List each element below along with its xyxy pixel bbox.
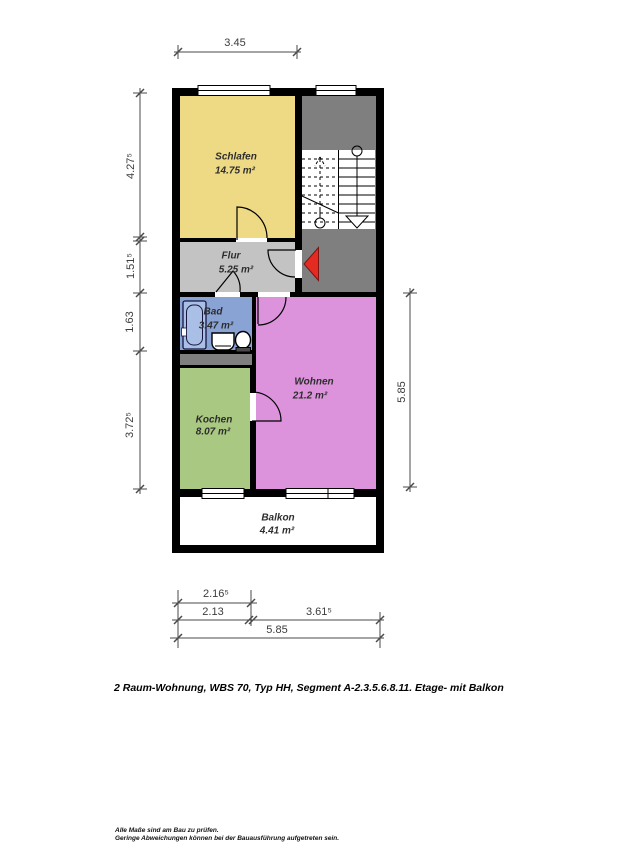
room-label-flur: Flur: [222, 251, 241, 262]
dim-right-label: 5.85: [396, 381, 408, 402]
room-area-flur: 5.25 m²: [219, 265, 253, 276]
room-area-wohnen: 21.2 m²: [293, 391, 327, 402]
shaft: [180, 354, 252, 365]
floor-plan-canvas: [0, 0, 640, 849]
room-area-bad: 3.47 m²: [199, 321, 233, 332]
room-area-kochen: 8.07 m²: [196, 427, 230, 438]
dim-left-label-2: 1.63: [124, 311, 136, 332]
room-label-wohnen: Wohnen: [294, 377, 333, 388]
washbasin-icon: [212, 333, 234, 350]
floor-plan-page: Schlafen 14.75 m² Flur 5.25 m² Bad 3.47 …: [0, 0, 640, 849]
dim-bottom-label-0: 2.16⁵: [203, 588, 229, 600]
toilet-icon: [236, 332, 251, 353]
dim-top-label: 3.45: [224, 37, 245, 49]
plan-footnote: Alle Maße sind am Bau zu prüfen. Geringe…: [115, 827, 339, 843]
dim-bottom-label-2: 3.61⁵: [306, 606, 332, 618]
dim-left-label-1: 1.51⁵: [125, 253, 137, 279]
dim-left-label-0: 4.27⁵: [125, 153, 137, 179]
footnote-line-1: Alle Maße sind am Bau zu prüfen.: [115, 827, 339, 835]
room-label-schlafen: Schlafen: [215, 152, 257, 163]
dim-left-label-3: 3.72⁵: [124, 412, 136, 438]
footnote-line-2: Geringe Abweichungen können bei der Baua…: [115, 835, 339, 843]
room-label-balkon: Balkon: [261, 513, 294, 524]
room-label-bad: Bad: [204, 307, 223, 318]
plan-caption: 2 Raum-Wohnung, WBS 70, Typ HH, Segment …: [114, 682, 504, 694]
room-area-balkon: 4.41 m²: [260, 526, 294, 537]
staircase-icon: [302, 146, 375, 229]
room-label-kochen: Kochen: [196, 415, 233, 426]
dim-bottom-label-1: 2.13: [202, 606, 223, 618]
dim-bottom-label-3: 5.85: [266, 624, 287, 636]
room-area-schlafen: 14.75 m²: [215, 166, 255, 177]
